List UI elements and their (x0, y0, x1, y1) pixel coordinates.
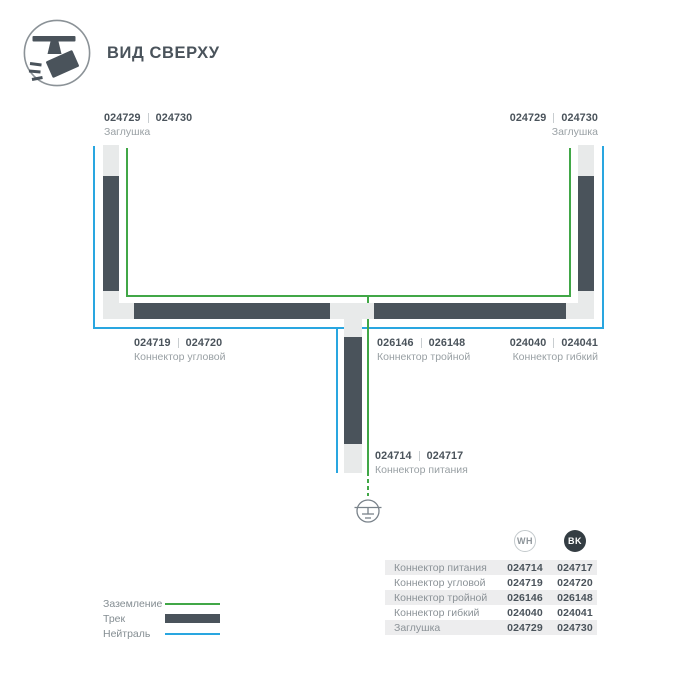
code-wh: 024040 (510, 337, 547, 349)
legend-label: Заземление (103, 598, 165, 610)
row-part-name: Коннектор угловой (385, 577, 497, 589)
part-name: Коннектор угловой (134, 351, 226, 363)
ground-line-swatch (165, 603, 220, 605)
code-bk: 024730 (561, 112, 598, 124)
table-row: Коннектор тройной 026146 026148 (385, 590, 597, 605)
row-code-wh: 026146 (497, 592, 553, 604)
code-divider (421, 338, 422, 348)
part-codes: 024729 024730 (104, 112, 192, 124)
row-part-name: Заглушка (385, 622, 497, 634)
part-name: Коннектор тройной (377, 351, 470, 363)
part-name: Заглушка (510, 126, 598, 138)
row-code-bk: 024041 (553, 607, 597, 619)
code-divider (148, 113, 149, 123)
code-bk: 024720 (186, 337, 223, 349)
label-endcap-right: 024729 024730 Заглушка (510, 112, 598, 138)
catalog-page: ВИД СВЕРХУ (0, 0, 700, 700)
table-row: Заглушка 024729 024730 (385, 620, 597, 635)
legend-label: Нейтраль (103, 628, 165, 640)
code-wh: 026146 (377, 337, 414, 349)
code-divider (553, 113, 554, 123)
track-bar-swatch (165, 614, 220, 623)
label-endcap-left: 024729 024730 Заглушка (104, 112, 192, 138)
row-code-wh: 024714 (497, 562, 553, 574)
row-part-name: Коннектор питания (385, 562, 497, 574)
legend-item-ground: Заземление (103, 596, 220, 611)
part-codes: 024714 024717 (375, 450, 468, 462)
part-codes: 024719 024720 (134, 337, 226, 349)
code-wh: 024729 (510, 112, 547, 124)
part-codes: 024040 024041 (510, 337, 598, 349)
code-bk: 026148 (429, 337, 466, 349)
code-divider (553, 338, 554, 348)
table-row: Коннектор угловой 024719 024720 (385, 575, 597, 590)
parts-table-header: WH BK (385, 530, 597, 552)
legend-item-neutral: Нейтраль (103, 626, 220, 641)
label-corner-connector: 024719 024720 Коннектор угловой (134, 337, 226, 363)
row-code-bk: 024730 (553, 622, 597, 634)
code-wh: 024719 (134, 337, 171, 349)
legend: Заземление Трек Нейтраль (103, 596, 220, 641)
part-codes: 024729 024730 (510, 112, 598, 124)
label-triple-connector: 026146 026148 Коннектор тройной (377, 337, 470, 363)
row-code-wh: 024040 (497, 607, 553, 619)
part-name: Коннектор гибкий (510, 351, 598, 363)
legend-label: Трек (103, 613, 165, 625)
part-codes: 026146 026148 (377, 337, 470, 349)
table-row: Коннектор гибкий 024040 024041 (385, 605, 597, 620)
table-row: Коннектор питания 024714 024717 (385, 560, 597, 575)
color-badge-white: WH (514, 530, 536, 552)
row-code-wh: 024729 (497, 622, 553, 634)
color-badge-black: BK (564, 530, 586, 552)
neutral-line-swatch (165, 633, 220, 635)
row-code-bk: 024720 (553, 577, 597, 589)
row-part-name: Коннектор тройной (385, 592, 497, 604)
part-name: Заглушка (104, 126, 192, 138)
code-divider (419, 451, 420, 461)
legend-item-track: Трек (103, 611, 220, 626)
parts-table: WH BK Коннектор питания 024714 024717 Ко… (385, 530, 597, 635)
part-name: Коннектор питания (375, 464, 468, 476)
code-wh: 024714 (375, 450, 412, 462)
earth-ground-icon (355, 500, 382, 522)
row-code-bk: 026148 (553, 592, 597, 604)
row-code-wh: 024719 (497, 577, 553, 589)
label-flex-connector: 024040 024041 Коннектор гибкий (510, 337, 598, 363)
code-wh: 024729 (104, 112, 141, 124)
label-power-connector: 024714 024717 Коннектор питания (375, 450, 468, 476)
code-bk: 024041 (561, 337, 598, 349)
code-bk: 024717 (427, 450, 464, 462)
code-divider (178, 338, 179, 348)
row-part-name: Коннектор гибкий (385, 607, 497, 619)
row-code-bk: 024717 (553, 562, 597, 574)
code-bk: 024730 (156, 112, 193, 124)
